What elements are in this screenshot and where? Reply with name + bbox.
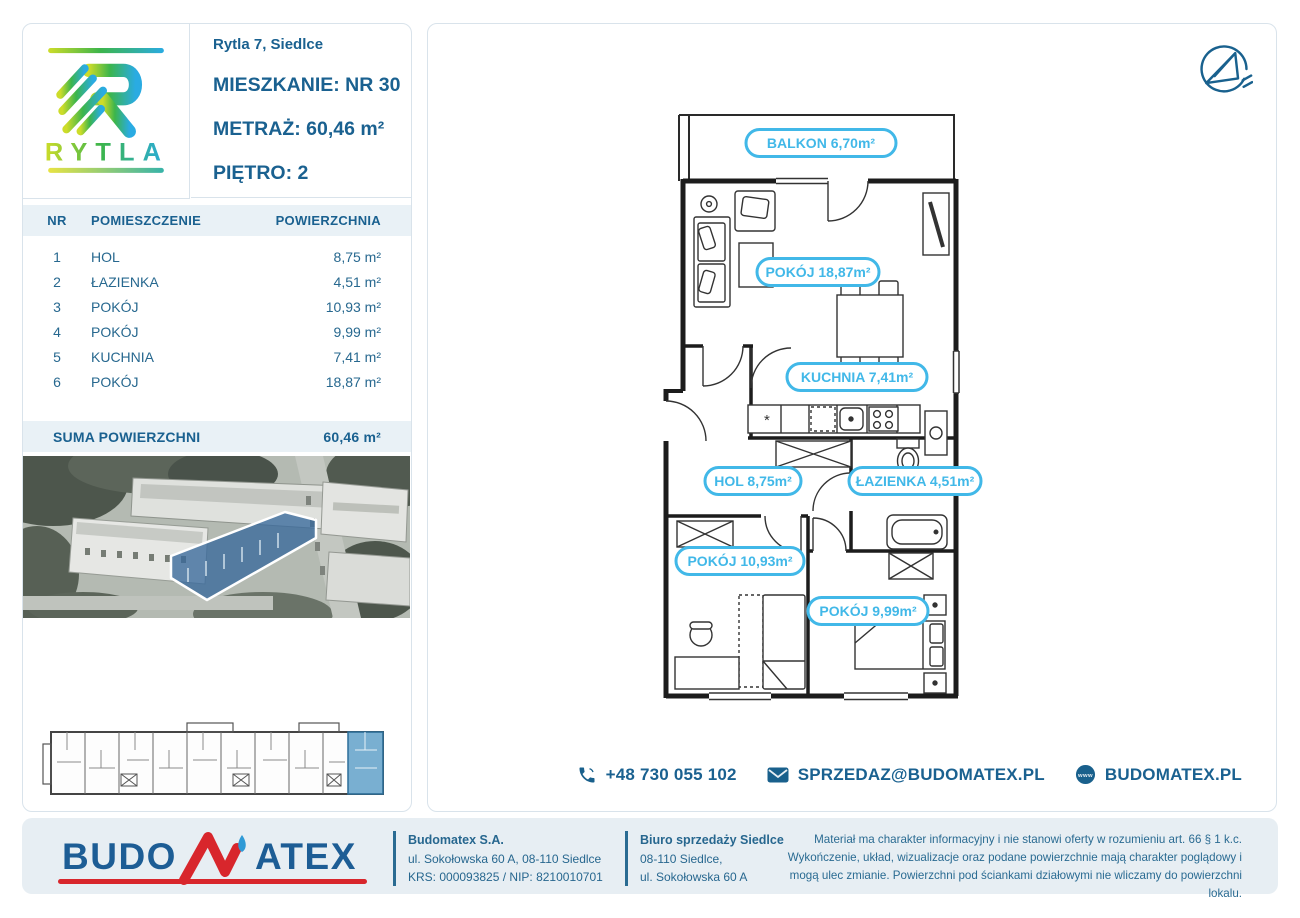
apartment-info-panel: RYTLA Rytla 7, Siedlce MIESZKANIE: NR 30… (22, 23, 412, 812)
apartment-number: MIESZKANIE: NR 30 (213, 74, 407, 97)
room-label-pokoj-9: POKÓJ 9,99m² (808, 598, 928, 625)
svg-text:HOL 8,75m²: HOL 8,75m² (714, 473, 792, 489)
floor-plan: * BALKON 6,70m (651, 101, 996, 715)
building-address: Rytla 7, Siedlce (213, 36, 407, 53)
table-row: 5KUCHNIA7,41 m² (23, 344, 411, 369)
room-label-lazienka: ŁAZIENKA 4,51m² (849, 468, 981, 495)
footer-band: BUDO ATEX Budomatex S.A. ul. Sokołowska … (22, 818, 1278, 894)
sum-label: SUMA POWIERZCHNI (23, 429, 323, 445)
email-link[interactable]: SPRZEDAZ@BUDOMATEX.PL (767, 765, 1045, 785)
aerial-photo-illustration (23, 456, 410, 618)
phone-link[interactable]: +48 730 055 102 (577, 765, 737, 785)
legal-disclaimer: Materiał ma charakter informacyjny i nie… (777, 831, 1242, 903)
svg-text:*: * (764, 412, 770, 429)
col-nr: NR (23, 213, 91, 228)
room-label-kuchnia: KUCHNIA 7,41m² (787, 364, 927, 391)
www-globe-icon: www (1075, 764, 1096, 785)
area-sum-row: SUMA POWIERZCHNI 60,46 m² (23, 421, 411, 452)
building-floor-overview (37, 710, 397, 810)
svg-text:POKÓJ 18,87m²: POKÓJ 18,87m² (765, 263, 870, 280)
budomatex-underline (58, 879, 367, 884)
room-label-pokoj-18: POKÓJ 18,87m² (757, 259, 879, 286)
table-row: 1HOL8,75 m² (23, 244, 411, 269)
budomatex-m-icon (179, 830, 253, 886)
rytla-logo-icon: RYTLA (40, 44, 172, 178)
envelope-icon (767, 766, 789, 784)
company-address: ul. Sokołowska 60 A, 08-110 Siedlce (408, 850, 633, 868)
table-row: 2ŁAZIENKA4,51 m² (23, 269, 411, 294)
north-compass-icon (1195, 41, 1253, 99)
col-area: POWIERZCHNIA (271, 213, 411, 228)
room-label-balkon: BALKON 6,70m² (746, 130, 896, 157)
col-room: POMIESZCZENIE (91, 213, 271, 228)
phone-icon (577, 765, 597, 785)
building-floor-overview-drawing (37, 710, 397, 810)
aerial-photo (23, 456, 410, 618)
apartment-floor: PIĘTRO: 2 (213, 162, 407, 185)
svg-text:POKÓJ 9,99m²: POKÓJ 9,99m² (819, 602, 917, 619)
rytla-logo: RYTLA (23, 24, 190, 199)
sum-value: 60,46 m² (323, 429, 411, 445)
svg-text:KUCHNIA 7,41m²: KUCHNIA 7,41m² (801, 369, 914, 385)
website-link[interactable]: www BUDOMATEX.PL (1075, 764, 1242, 785)
svg-text:ŁAZIENKA 4,51m²: ŁAZIENKA 4,51m² (856, 473, 975, 489)
room-label-hol: HOL 8,75m² (705, 468, 801, 495)
table-row: 6POKÓJ18,87 m² (23, 369, 411, 394)
room-label-pokoj-10: POKÓJ 10,93m² (676, 548, 804, 575)
table-row: 4POKÓJ9,99 m² (23, 319, 411, 344)
table-row: 3POKÓJ10,93 m² (23, 294, 411, 319)
rooms-table: 1HOL8,75 m² 2ŁAZIENKA4,51 m² 3POKÓJ10,93… (23, 244, 411, 394)
company-info: Budomatex S.A. ul. Sokołowska 60 A, 08-1… (393, 831, 633, 886)
company-name: Budomatex S.A. (408, 831, 633, 850)
svg-text:POKÓJ 10,93m²: POKÓJ 10,93m² (687, 552, 792, 569)
company-ids: KRS: 000093825 / NIP: 8210010701 (408, 868, 633, 886)
rytla-logo-text: RYTLA (45, 139, 169, 167)
svg-text:BALKON 6,70m²: BALKON 6,70m² (767, 135, 875, 151)
rooms-table-header: NR POMIESZCZENIE POWIERZCHNIA (23, 205, 411, 236)
contact-row: +48 730 055 102 SPRZEDAZ@BUDOMATEX.PL ww… (577, 764, 1242, 785)
svg-text:www: www (1077, 773, 1093, 779)
apartment-header: Rytla 7, Siedlce MIESZKANIE: NR 30 METRA… (191, 24, 411, 198)
apartment-area: METRAŻ: 60,46 m² (213, 118, 407, 141)
budomatex-logo: BUDO ATEX (62, 826, 357, 886)
floor-plan-panel: * BALKON 6,70m (427, 23, 1277, 812)
